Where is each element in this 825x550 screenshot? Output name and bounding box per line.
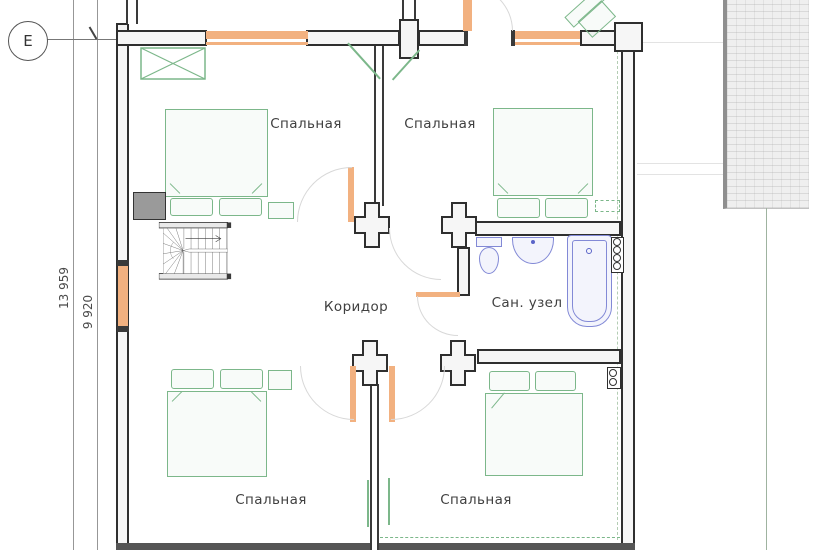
door-arc-bedroom-bottom-right — [391, 366, 445, 420]
bed-blanket — [493, 108, 593, 196]
room-label-bedroom-bottom-left: Спальная — [235, 492, 307, 508]
wall-finish-mark — [367, 480, 369, 527]
wall-cross-column — [440, 340, 476, 386]
window-jamb — [117, 260, 129, 266]
toilet-tank — [476, 237, 502, 247]
door-jamb — [464, 30, 468, 46]
bed-pillow — [497, 198, 540, 218]
axis-marker-label: Е — [23, 32, 32, 50]
room-label-bedroom-top-left: Спальная — [270, 116, 342, 132]
room-label-bathroom: Сан. узел — [492, 295, 563, 311]
partition-bottom-bedrooms — [370, 384, 379, 550]
wall-cross-column — [352, 340, 388, 386]
room-label-bedroom-top-right: Спальная — [404, 116, 476, 132]
bed-pillow — [489, 371, 530, 391]
wall-cross-column — [441, 202, 477, 248]
wall-top-segment — [306, 30, 400, 46]
bed-pillow — [171, 369, 214, 389]
door-arc-exterior — [467, 0, 513, 31]
bottom-rug-edge — [380, 537, 620, 538]
wall-right — [621, 30, 635, 550]
stairs — [129, 222, 313, 368]
bed-pillow — [170, 198, 213, 216]
bed-blanket — [167, 391, 267, 477]
room-label-bedroom-bottom-right: Спальная — [440, 492, 512, 508]
sink-tap — [531, 240, 535, 244]
vent-column — [607, 367, 621, 389]
roof-guide-line — [637, 174, 723, 175]
window-stairs — [118, 266, 128, 326]
partition-top-bedrooms — [374, 46, 384, 206]
bed-blanket — [485, 393, 583, 476]
door-jamb — [511, 30, 515, 46]
nightstand — [268, 370, 292, 390]
wall-cross-column — [354, 202, 390, 248]
door-arc-bedroom-bottom-left — [300, 366, 354, 420]
bed-pillow — [545, 198, 588, 218]
wall-corridor-bottom-right — [477, 349, 621, 364]
roof-panel — [723, 0, 809, 209]
dimension-label-inner: 9 920 — [81, 295, 95, 329]
toilet-bowl — [479, 247, 499, 274]
door-arc-bathroom — [417, 296, 458, 336]
roof-guide-line — [643, 42, 723, 43]
window-top-1-sill — [206, 42, 308, 45]
window-top-1 — [206, 31, 308, 39]
wall-top-segment — [116, 30, 207, 46]
shelf — [595, 200, 620, 212]
room-label-corridor: Коридор — [324, 299, 388, 315]
roof-edge-line — [766, 208, 767, 550]
floor-plan: Е 13 959 9 920 — [0, 0, 825, 550]
dimension-line-outer — [73, 0, 74, 550]
window-jamb — [117, 326, 129, 332]
wall-finish-mark — [388, 478, 390, 525]
bathtub-drain — [586, 248, 592, 254]
bed-pillow — [219, 198, 262, 216]
wall-stub — [402, 0, 416, 20]
towel-radiator — [611, 237, 624, 273]
wall-stub — [126, 0, 138, 24]
wall-right-inner-face — [617, 46, 618, 540]
wall-bathroom-top — [475, 221, 621, 236]
window-top-2 — [514, 31, 580, 39]
roof-guide-line — [637, 163, 723, 164]
axis-marker: Е — [8, 21, 48, 61]
corner-column — [614, 22, 643, 52]
bed-pillow — [535, 371, 576, 391]
wall-top-segment — [418, 30, 467, 46]
dimension-line-inner — [97, 0, 98, 550]
bed-pillow — [220, 369, 263, 389]
window-top-2-sill — [514, 42, 580, 45]
door-arc-bedroom-top-right — [389, 228, 441, 280]
wardrobe — [140, 47, 206, 80]
dimension-label-outer: 13 959 — [57, 267, 71, 309]
wall-bathroom-left — [457, 247, 470, 296]
nightstand — [268, 202, 294, 219]
door-arc-bedroom-top-left — [297, 167, 352, 222]
bed-blanket — [165, 109, 268, 197]
chimney-block — [133, 192, 166, 220]
